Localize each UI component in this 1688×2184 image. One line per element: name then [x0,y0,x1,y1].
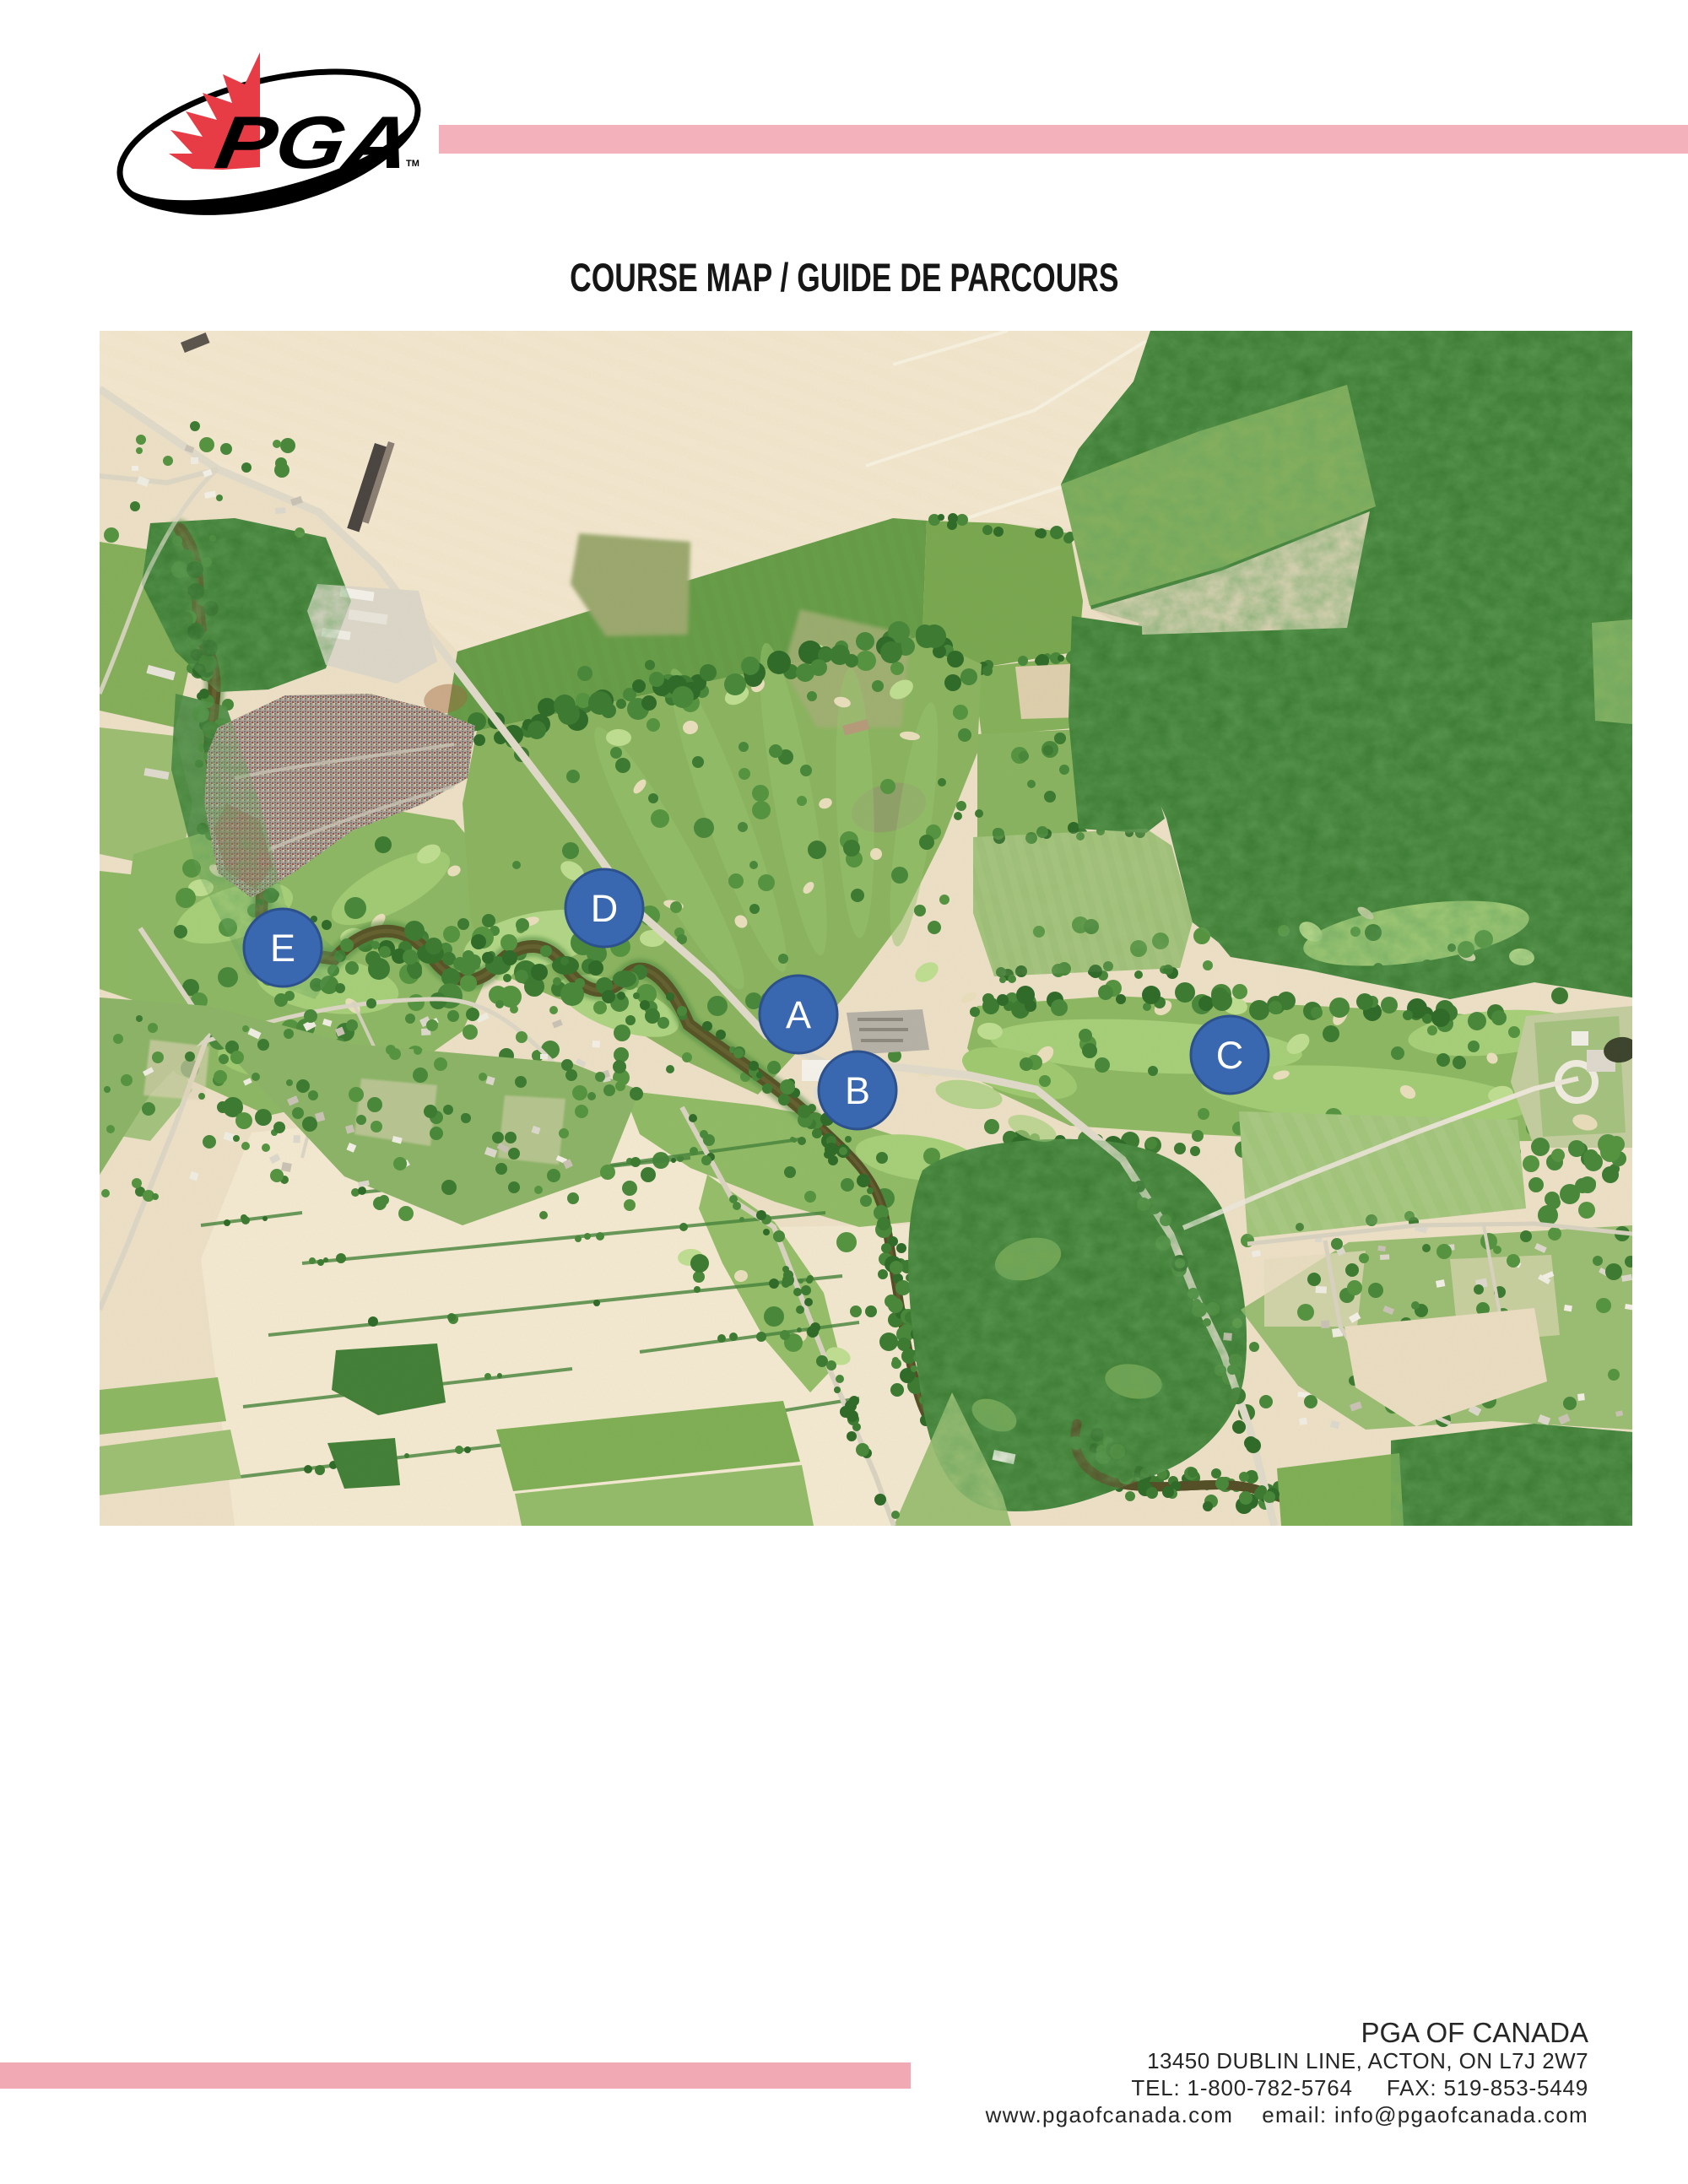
svg-text:E: E [270,927,295,970]
svg-text:TM: TM [406,159,419,169]
svg-text:C: C [1216,1034,1244,1077]
svg-text:PGA: PGA [210,101,417,184]
svg-text:A: A [786,993,811,1036]
svg-text:B: B [845,1069,870,1112]
svg-text:D: D [591,887,619,930]
